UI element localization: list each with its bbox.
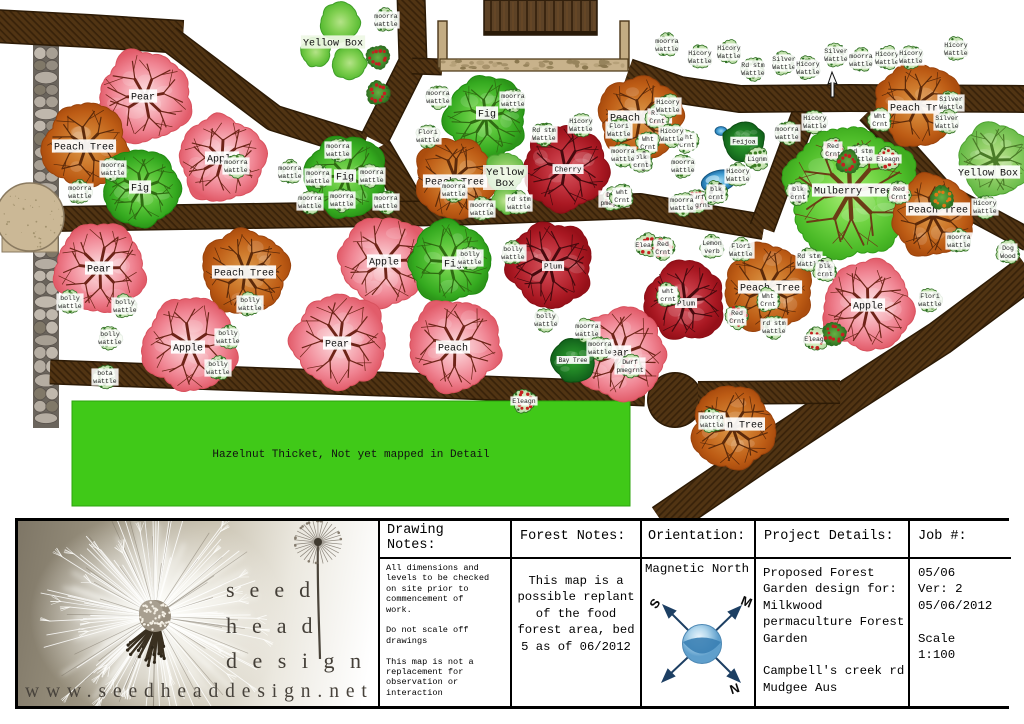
svg-text:verb: verb [704,248,720,255]
svg-text:moorra: moorra [306,170,330,177]
svg-text:wattle: wattle [374,21,398,28]
svg-text:Apple: Apple [369,257,399,269]
svg-text:bota: bota [97,370,113,377]
svg-text:wattle: wattle [278,173,302,180]
svg-text:moorra: moorra [298,195,322,202]
svg-text:Pear: Pear [87,265,111,276]
svg-text:Pear: Pear [325,340,349,351]
svg-text:pmegrnt: pmegrnt [616,367,643,374]
svg-text:Crnt: Crnt [614,197,630,204]
svg-text:Apple: Apple [853,301,883,313]
svg-text:Wht: Wht [874,113,886,120]
svg-text:Wattle: Wattle [688,58,712,65]
svg-text:Wattle: Wattle [944,50,968,57]
svg-text:Crnt: Crnt [729,318,745,325]
svg-text:Yellow Box: Yellow Box [303,38,363,50]
svg-text:Hicory: Hicory [569,118,593,125]
svg-text:wattle: wattle [306,178,330,185]
svg-text:Eleagn: Eleagn [512,398,536,405]
svg-text:wattle: wattle [442,191,466,198]
svg-text:Plum: Plum [677,301,696,309]
svg-text:Silver: Silver [939,96,963,103]
svg-text:crnt: crnt [708,194,724,201]
svg-text:Wattle: Wattle [607,131,631,138]
svg-text:Flori: Flori [609,123,629,130]
svg-text:wattle: wattle [238,305,262,312]
svg-text:Hicory: Hicory [717,45,741,52]
svg-text:wattle: wattle [426,98,450,105]
svg-text:moorra: moorra [470,202,494,209]
svg-text:rd stm: rd stm [507,196,531,203]
svg-text:blk: blk [710,186,722,193]
svg-text:wattle: wattle [849,61,873,68]
svg-text:wattle: wattle [611,156,635,163]
svg-text:Wattle: Wattle [772,64,796,71]
svg-text:crnt: crnt [790,194,806,201]
svg-text:wht: wht [616,189,628,196]
svg-text:blk: blk [819,263,831,270]
svg-text:wattle: wattle [670,205,694,212]
svg-text:bolly: bolly [100,331,120,338]
svg-text:Crnt: Crnt [655,249,671,256]
svg-text:Wattle: Wattle [935,123,959,130]
svg-text:rd stm: rd stm [762,320,786,327]
svg-text:n Tree: n Tree [727,421,763,432]
svg-text:blk: blk [635,154,647,161]
svg-text:bolly: bolly [115,299,135,306]
svg-text:moorra: moorra [775,126,799,133]
svg-text:wattle: wattle [224,167,248,174]
svg-text:Silver: Silver [824,48,848,55]
svg-text:crnt: crnt [817,271,833,278]
svg-text:Rd stm: Rd stm [532,127,556,134]
svg-text:wattle: wattle [360,177,384,184]
svg-text:moorra: moorra [224,159,248,166]
svg-text:wattle: wattle [588,349,612,356]
svg-text:wattle: wattle [575,331,599,338]
svg-text:Wattle: Wattle [656,107,680,114]
svg-text:wattle: wattle [101,170,125,177]
svg-text:Red: Red [657,241,669,248]
svg-text:wattle: wattle [501,254,525,261]
svg-text:Wattle: Wattle [717,53,741,60]
svg-text:Pear: Pear [131,93,155,104]
svg-text:moorra: moorra [374,13,398,20]
svg-text:Silver: Silver [772,56,796,63]
svg-text:Red: Red [827,143,839,150]
svg-text:wattle: wattle [374,203,398,210]
svg-text:wattle: wattle [918,301,942,308]
svg-text:Rd stm: Rd stm [797,253,821,260]
svg-text:crnt: crnt [660,296,676,303]
svg-text:Feijoa: Feijoa [732,138,756,145]
svg-text:Red: Red [731,310,743,317]
svg-text:wattle: wattle [775,134,799,141]
svg-text:moorra: moorra [947,234,971,241]
svg-text:Hicory: Hicory [656,99,680,106]
svg-text:Dwrf: Dwrf [622,359,638,366]
svg-text:moorra: moorra [68,185,92,192]
svg-text:Hicory: Hicory [944,42,968,49]
svg-text:wattle: wattle [973,208,997,215]
svg-text:moorra: moorra [670,197,694,204]
svg-text:Wattle: Wattle [875,59,899,66]
svg-text:Wattle: Wattle [741,70,765,77]
svg-text:bolly: bolly [208,361,228,368]
svg-text:N: N [728,680,742,697]
svg-text:Silver: Silver [935,115,959,122]
svg-text:bolly: bolly [218,330,238,337]
svg-text:Bay Tree: Bay Tree [559,357,588,364]
svg-text:Yellow Box: Yellow Box [958,168,1018,180]
svg-text:Lemon: Lemon [702,240,722,247]
svg-text:wattle: wattle [58,303,82,310]
svg-text:Wattle: Wattle [729,251,753,258]
svg-text:moorra: moorra [278,165,302,172]
svg-text:bolly: bolly [60,295,80,302]
svg-text:Hicory: Hicory [726,168,750,175]
svg-text:Cherry: Cherry [554,167,582,175]
svg-text:wht: wht [662,288,674,295]
svg-text:Wattle: Wattle [824,56,848,63]
svg-text:moorra: moorra [501,93,525,100]
svg-text:moorra: moorra [575,323,599,330]
svg-text:Lignm: Lignm [747,156,767,163]
svg-text:bolly: bolly [536,313,556,320]
svg-text:Peach Tree: Peach Tree [214,268,274,280]
svg-text:wattle: wattle [458,259,482,266]
svg-text:Hicory: Hicory [688,50,712,57]
svg-text:Crnt: Crnt [760,301,776,308]
svg-text:Mulberry Tree: Mulberry Tree [814,186,892,198]
svg-text:Plum: Plum [544,264,563,272]
svg-text:Apple: Apple [173,343,203,355]
svg-text:wattle: wattle [93,378,117,385]
svg-text:wattle: wattle [206,369,230,376]
svg-text:Hicory: Hicory [899,50,923,57]
svg-text:Wattle: Wattle [796,69,820,76]
svg-text:Red: Red [893,186,905,193]
svg-text:wattle: wattle [68,193,92,200]
svg-text:Wattle: Wattle [532,135,556,142]
svg-text:Hicory: Hicory [796,61,820,68]
svg-text:bolly: bolly [503,246,523,253]
svg-text:Wattle: Wattle [899,58,923,65]
svg-text:moorra: moorra [671,159,695,166]
svg-text:wattle: wattle [98,339,122,346]
svg-text:moorra: moorra [360,169,384,176]
svg-text:Dog: Dog [1002,245,1014,252]
svg-text:Crnt: Crnt [872,121,888,128]
svg-text:Flori: Flori [418,129,438,136]
svg-text:moorra: moorra [101,162,125,169]
svg-text:Wattle: Wattle [726,176,750,183]
svg-text:Wood: Wood [1000,253,1016,260]
svg-text:wattle: wattle [762,328,786,335]
svg-text:Fig: Fig [336,172,354,184]
svg-text:Hicory: Hicory [660,128,684,135]
svg-text:Flori: Flori [731,243,751,250]
svg-text:bolly: bolly [240,297,260,304]
svg-text:moorra: moorra [330,193,354,200]
svg-text:S: S [646,595,663,611]
svg-text:moorra: moorra [611,148,635,155]
svg-text:Fig: Fig [131,183,149,195]
svg-text:Peach Tree: Peach Tree [54,142,114,154]
svg-text:wattle: wattle [470,210,494,217]
svg-text:Rd stm: Rd stm [741,62,765,69]
svg-text:Wht: Wht [642,136,654,143]
svg-text:Wattle: Wattle [660,136,684,143]
svg-text:wattle: wattle [416,137,440,144]
svg-text:moorra: moorra [655,38,679,45]
svg-text:wattle: wattle [507,204,531,211]
svg-text:wattle: wattle [216,338,240,345]
svg-text:wattle: wattle [534,321,558,328]
svg-text:Hazelnut Thicket, Not yet mapp: Hazelnut Thicket, Not yet mapped in Deta… [212,449,489,461]
svg-text:wattle: wattle [298,203,322,210]
svg-text:bolly: bolly [460,251,480,258]
svg-text:wattle: wattle [947,242,971,249]
svg-text:moorra: moorra [849,53,873,60]
svg-text:Fig: Fig [478,109,496,121]
svg-text:Hicory: Hicory [875,51,899,58]
svg-text:Hicory: Hicory [803,115,827,122]
svg-text:wattle: wattle [113,307,137,314]
svg-text:moorra: moorra [326,143,350,150]
svg-text:Crnt: Crnt [649,118,665,125]
svg-text:Eleagn: Eleagn [876,156,900,163]
svg-text:moorra: moorra [426,90,450,97]
svg-text:moorra: moorra [700,414,724,421]
svg-text:Crnt: Crnt [891,194,907,201]
svg-text:moorra: moorra [442,183,466,190]
svg-text:wattle: wattle [330,201,354,208]
svg-text:wattle: wattle [326,151,350,158]
svg-text:blk: blk [792,186,804,193]
svg-text:moorra: moorra [374,195,398,202]
svg-text:wattle: wattle [655,46,679,53]
svg-text:wattle: wattle [671,167,695,174]
svg-text:wattle: wattle [501,101,525,108]
svg-text:Peach: Peach [438,343,468,355]
svg-text:Wht: Wht [762,293,774,300]
svg-text:Wattle: Wattle [569,126,593,133]
svg-text:moorra: moorra [588,341,612,348]
svg-text:Flori: Flori [920,293,940,300]
svg-text:Box: Box [496,178,515,190]
svg-text:Wattle: Wattle [803,123,827,130]
svg-text:wattle: wattle [700,422,724,429]
svg-text:Hicory: Hicory [973,200,997,207]
svg-text:M: M [739,593,755,611]
